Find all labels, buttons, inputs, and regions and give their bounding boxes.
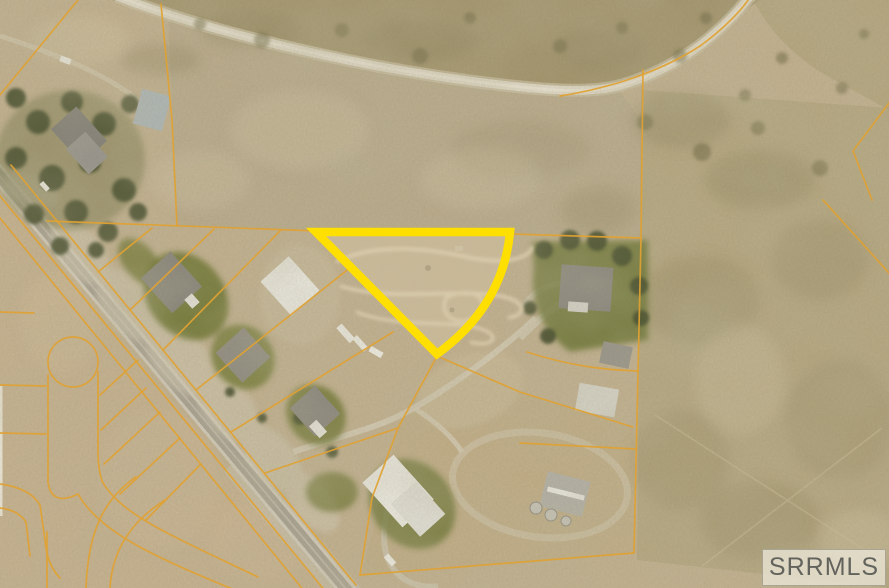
mls-aerial-photo: SRRMLS [0,0,889,588]
watermark: SRRMLS [762,549,886,586]
aerial-photo-canvas [0,0,889,588]
watermark-label: SRRMLS [769,553,879,582]
